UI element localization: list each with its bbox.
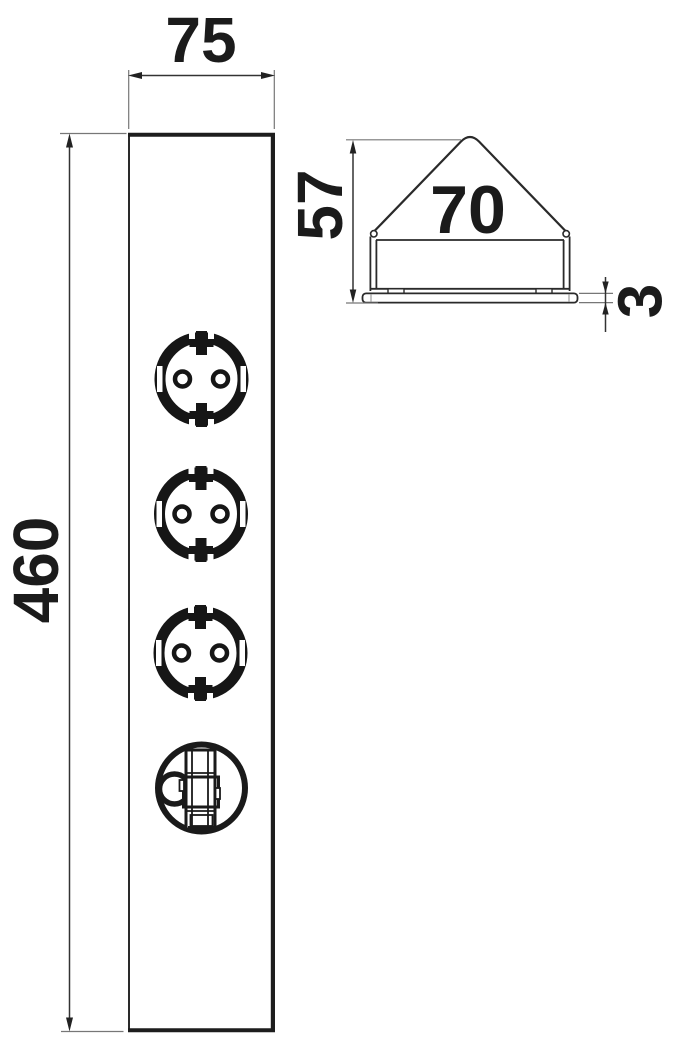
socket-bottom-notch bbox=[189, 419, 195, 427]
socket-pin-hole-left bbox=[175, 507, 190, 522]
profile-height-label: 57 bbox=[284, 169, 356, 240]
profile-view: 70 57 3 bbox=[284, 137, 676, 332]
arrowhead-down-icon bbox=[66, 1018, 73, 1032]
socket-bottom-notch bbox=[208, 419, 214, 427]
profile-width-label: 70 bbox=[430, 172, 506, 248]
socket-right-slot bbox=[240, 640, 246, 666]
socket-top-notch bbox=[208, 466, 214, 474]
socket-pin-hole-left bbox=[175, 372, 190, 387]
arrowhead-right-icon bbox=[261, 72, 275, 79]
arrowhead-left-icon bbox=[128, 72, 142, 79]
socket-bottom-notch bbox=[189, 554, 195, 562]
arrowhead-down-icon bbox=[350, 290, 357, 304]
socket-pin-hole-right bbox=[212, 646, 227, 661]
socket-top-clip-bar bbox=[190, 339, 214, 347]
schuko-socket-2 bbox=[157, 466, 246, 562]
schuko-socket-3 bbox=[156, 605, 245, 701]
plate-thickness-dimension: 3 bbox=[579, 277, 676, 332]
socket-right-slot bbox=[241, 366, 247, 392]
socket-left-slot bbox=[156, 640, 162, 666]
socket-bottom-clip-bar bbox=[189, 546, 213, 554]
socket-pin-hole-right bbox=[213, 372, 228, 387]
height-dimension-label: 460 bbox=[0, 517, 72, 624]
arrowhead-up-icon bbox=[350, 140, 357, 154]
socket-top-notch bbox=[189, 466, 195, 474]
socket-right-slot bbox=[240, 501, 246, 527]
latch-bottom-bar bbox=[188, 826, 215, 830]
socket-pin-hole-left bbox=[174, 646, 189, 661]
width-dimension-label: 75 bbox=[165, 4, 236, 76]
socket-bottom-notch bbox=[207, 693, 213, 701]
socket-bottom-notch bbox=[208, 554, 214, 562]
socket-top-clip-bar bbox=[189, 613, 213, 621]
roof-right-bead bbox=[563, 231, 569, 237]
height-dimension: 460 bbox=[0, 134, 127, 1032]
socket-top-clip-bar bbox=[189, 474, 213, 482]
socket-top-notch bbox=[208, 331, 214, 339]
technical-drawing: 75 460 bbox=[0, 0, 691, 1048]
latch-right-tab bbox=[216, 788, 221, 799]
width-dimension: 75 bbox=[128, 4, 275, 129]
socket-top-notch bbox=[189, 331, 195, 339]
schuko-socket-1 bbox=[157, 331, 246, 427]
drawing-svg: 75 460 bbox=[0, 0, 691, 1048]
arrowhead-up-icon bbox=[66, 134, 73, 148]
socket-left-slot bbox=[157, 366, 163, 392]
plate-thickness-label: 3 bbox=[607, 284, 676, 318]
front-view: 75 460 bbox=[0, 4, 275, 1032]
socket-pin-hole-right bbox=[213, 507, 228, 522]
panel-outline bbox=[128, 133, 275, 1031]
roof-left-bead bbox=[371, 231, 377, 237]
socket-top-notch bbox=[207, 605, 213, 613]
socket-bottom-notch bbox=[188, 693, 194, 701]
pull-ring-module bbox=[158, 745, 245, 832]
socket-left-slot bbox=[157, 501, 163, 527]
latch-left-tab bbox=[180, 780, 185, 791]
base-plate bbox=[363, 293, 578, 302]
socket-bottom-clip-bar bbox=[189, 685, 213, 693]
socket-bottom-clip-bar bbox=[190, 411, 214, 419]
socket-top-notch bbox=[188, 605, 194, 613]
